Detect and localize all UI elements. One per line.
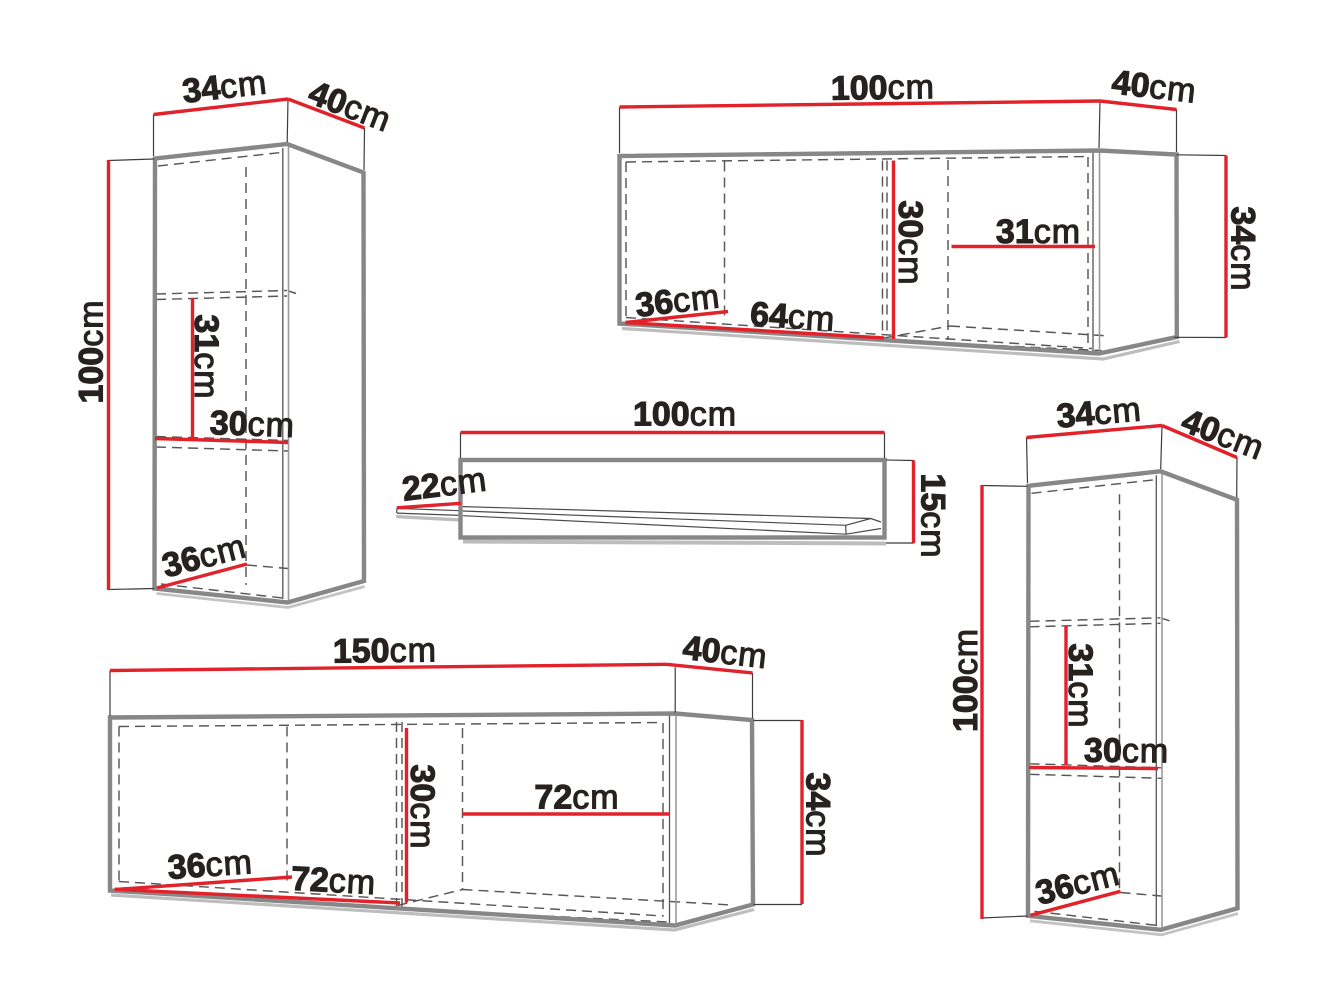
svg-text:34cm: 34cm — [799, 772, 837, 857]
svg-text:30cm: 30cm — [891, 200, 929, 285]
svg-text:100cm: 100cm — [633, 396, 737, 434]
svg-text:100cm: 100cm — [73, 299, 111, 403]
svg-text:15cm: 15cm — [914, 473, 952, 558]
svg-text:31cm: 31cm — [187, 314, 225, 399]
svg-text:34cm: 34cm — [1224, 206, 1262, 291]
svg-text:150cm: 150cm — [333, 631, 438, 670]
svg-text:100cm: 100cm — [831, 68, 936, 107]
svg-text:36cm: 36cm — [166, 843, 254, 887]
svg-text:31cm: 31cm — [996, 213, 1081, 251]
svg-text:30cm: 30cm — [209, 404, 295, 445]
svg-text:30cm: 30cm — [403, 764, 441, 849]
svg-text:34cm: 34cm — [1055, 390, 1143, 435]
svg-text:72cm: 72cm — [290, 860, 377, 902]
svg-text:100cm: 100cm — [947, 628, 985, 732]
svg-text:64cm: 64cm — [749, 295, 837, 339]
svg-text:72cm: 72cm — [534, 779, 619, 817]
svg-text:31cm: 31cm — [1061, 643, 1099, 728]
svg-text:30cm: 30cm — [1084, 732, 1169, 771]
